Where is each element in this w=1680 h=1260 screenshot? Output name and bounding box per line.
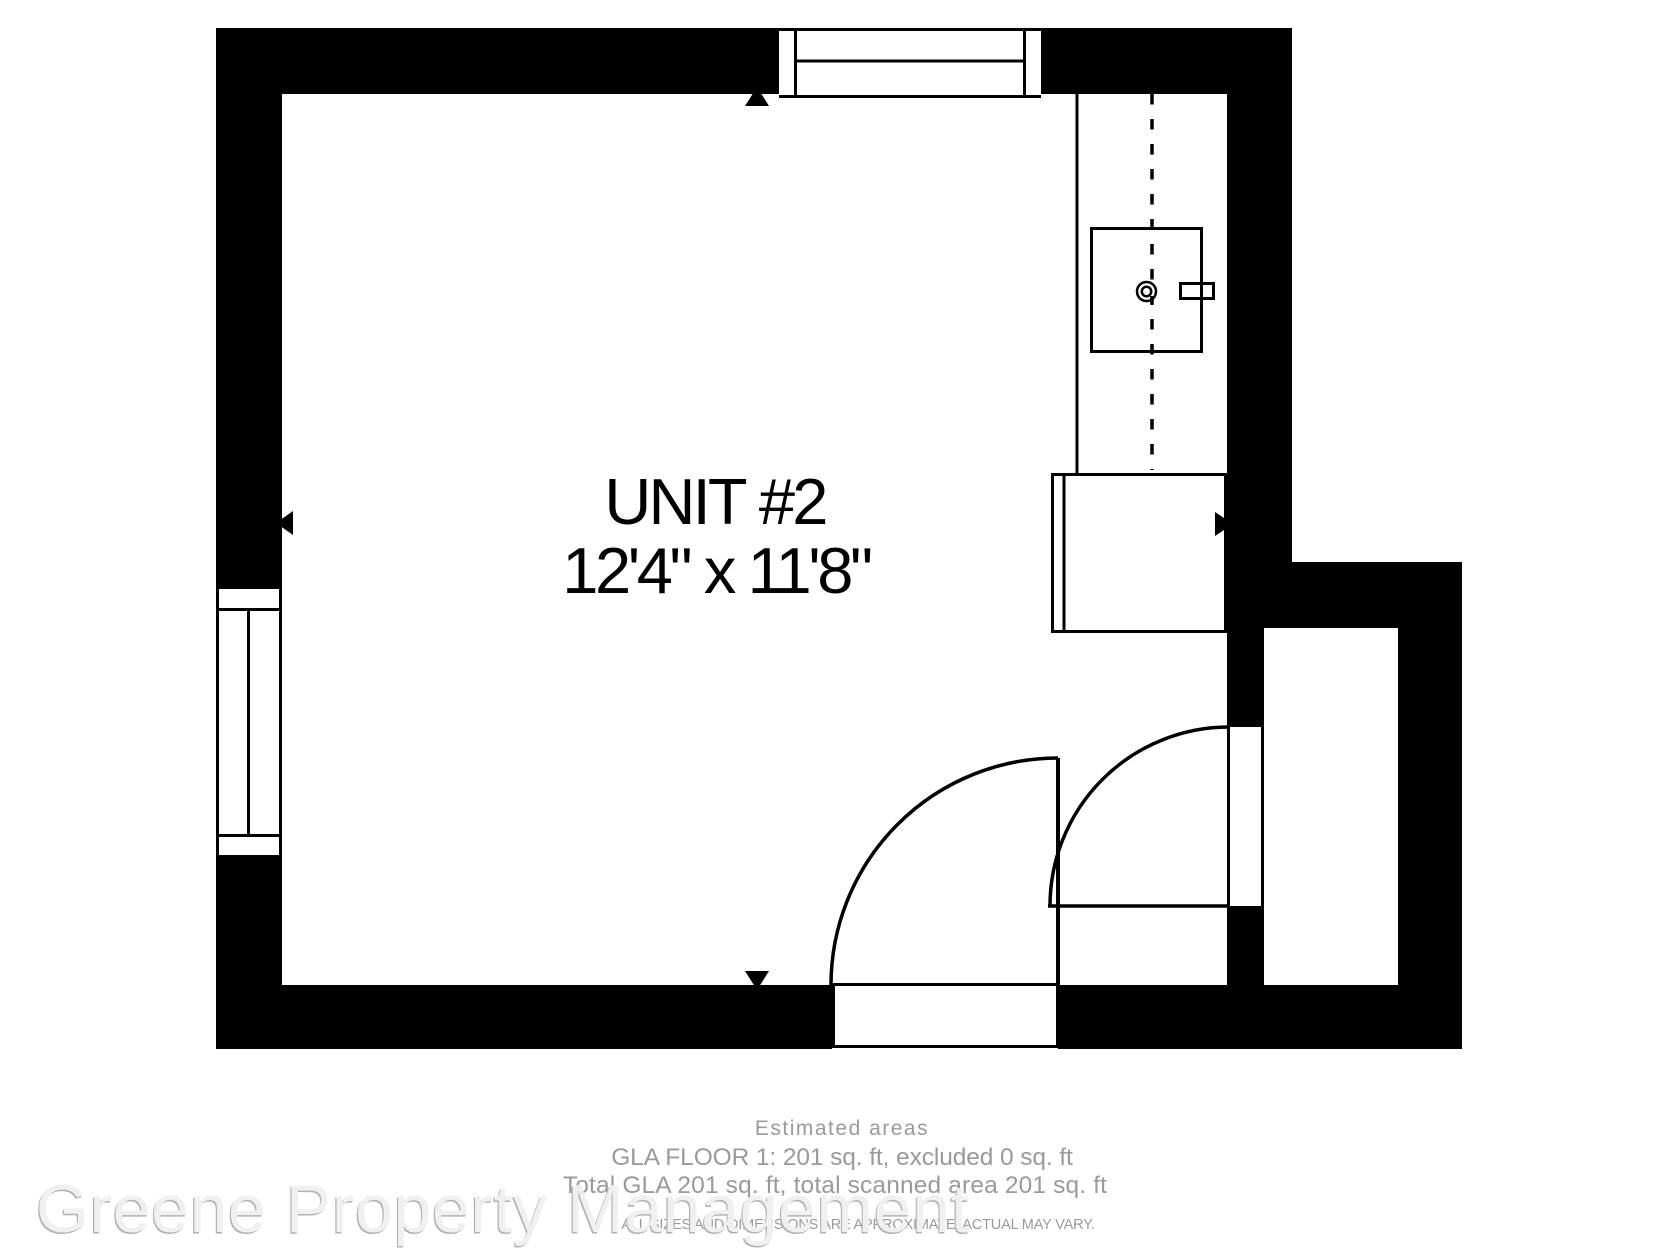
svg-text:UNIT #2: UNIT #2: [604, 465, 825, 538]
svg-text:Greene Property Management: Greene Property Management: [36, 1171, 970, 1247]
svg-text:GLA FLOOR 1: 201 sq. ft, exclu: GLA FLOOR 1: 201 sq. ft, excluded 0 sq. …: [611, 1144, 1073, 1171]
svg-text:12'4" x 11'8": 12'4" x 11'8": [562, 534, 871, 607]
svg-text:Estimated areas: Estimated areas: [755, 1117, 929, 1140]
